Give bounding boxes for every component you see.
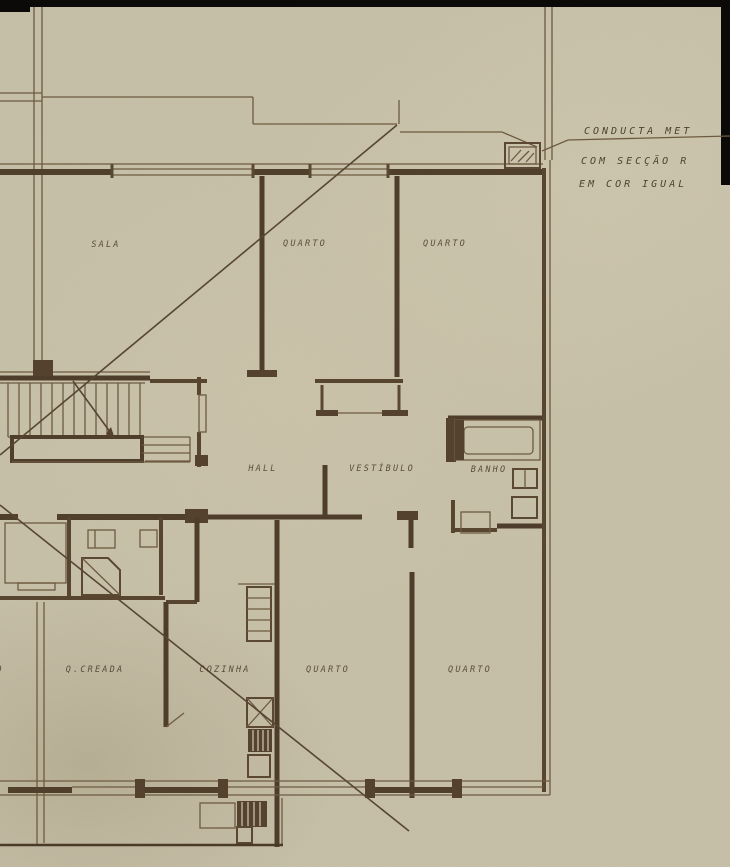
label-sala: SALA (91, 240, 120, 250)
facade-pillar (452, 779, 462, 798)
wall-pillar (33, 360, 53, 376)
facade-pillar (135, 779, 145, 798)
label-banho: BANHO (471, 465, 508, 475)
facade-pillar (218, 779, 228, 798)
label-hall: HALL (247, 464, 277, 474)
label-quarto-bottom-right: QUARTO (448, 665, 492, 675)
annotation-text: CONDUCTA MET COM SECÇÃO R EM COR IGUAL (579, 126, 692, 190)
annotation-line-1: CONDUCTA MET (584, 126, 692, 137)
scan-edge-top (0, 0, 730, 7)
label-q-creada: Q.CREADA (66, 665, 125, 675)
bathtub-end (455, 420, 464, 460)
label-partial-left: O (0, 665, 4, 675)
label-vestibulo: VESTÍBULO (349, 462, 415, 474)
scan-edge-top-right (721, 0, 730, 185)
annotation-line-2: COM SECÇÃO R (581, 154, 689, 167)
label-quarto-bottom-left: QUARTO (306, 665, 350, 675)
wall-t-cap (247, 370, 277, 377)
label-quarto-top-right: QUARTO (423, 239, 467, 249)
facade-pillar (365, 779, 375, 798)
annotation-line-3: EM COR IGUAL (579, 179, 687, 190)
label-cozinha: COZINHA (199, 665, 250, 675)
wardrobe-foot (382, 410, 408, 416)
wardrobe-foot (316, 410, 338, 416)
wall-cap (397, 511, 418, 520)
scanned-floor-plan-page: SALA QUARTO QUARTO HALL VESTÍBULO BANHO … (0, 0, 730, 867)
scan-edge-top-left (0, 0, 30, 12)
wall-block (195, 455, 208, 466)
label-quarto-top-left: QUARTO (283, 239, 327, 249)
floor-plan-drawing: SALA QUARTO QUARTO HALL VESTÍBULO BANHO … (0, 0, 730, 867)
